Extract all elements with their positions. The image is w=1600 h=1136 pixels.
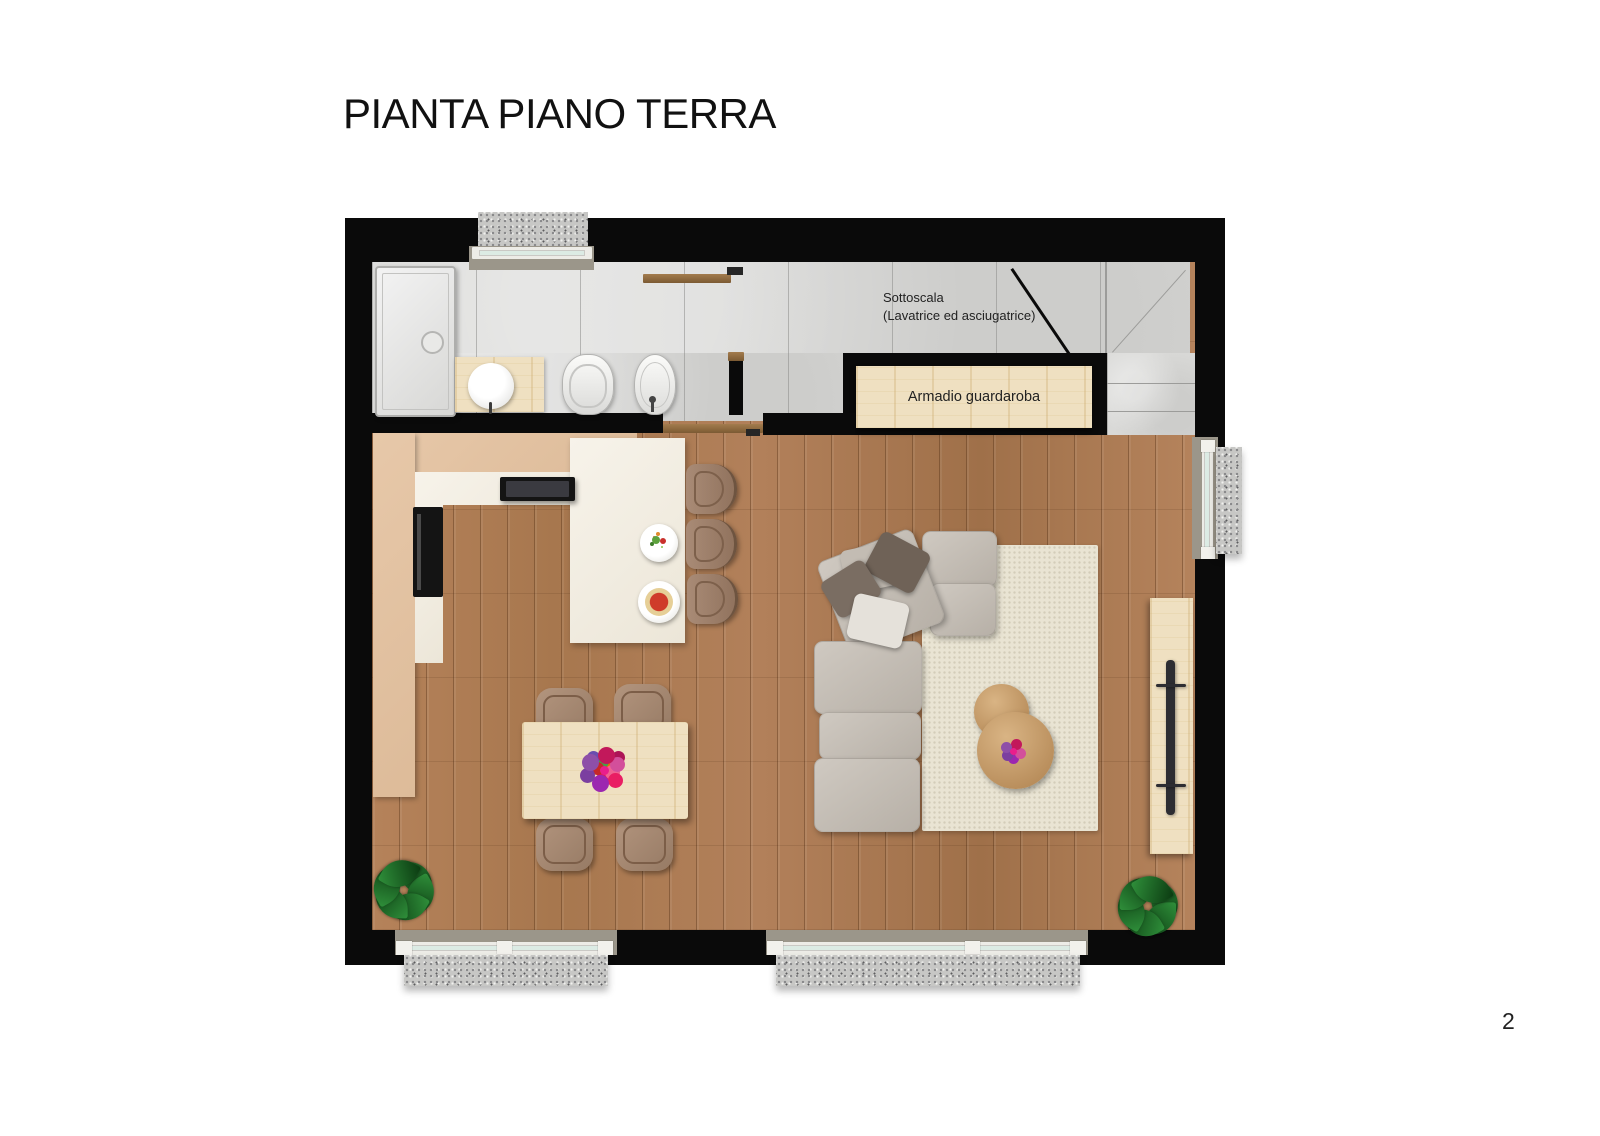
partition-cap <box>728 352 744 361</box>
document-page: PIANTA PIANO TERRA 2 Armadio guardaroba <box>0 0 1600 1136</box>
pasta-food <box>645 588 673 616</box>
kitchen-counter-left-column <box>373 433 415 797</box>
sofa-module <box>814 641 922 714</box>
sottoscala-note: Sottoscala (Lavatrice ed asciugatrice) <box>883 289 1035 325</box>
toilet <box>562 354 614 415</box>
bar-stool <box>686 464 737 514</box>
bar-stool <box>686 519 737 569</box>
dining-chair <box>536 818 593 871</box>
tv-stand-foot <box>1156 684 1186 687</box>
wall-hall-south <box>763 413 855 435</box>
bar-stool <box>687 574 738 624</box>
sottoscala-line2: (Lavatrice ed asciugatrice) <box>883 307 1035 325</box>
cooktop-surface <box>506 481 569 497</box>
stair-tread <box>1107 383 1195 384</box>
tile-floor-upper <box>372 262 1190 354</box>
page-number: 2 <box>1502 1008 1515 1035</box>
shower-drain <box>421 331 444 354</box>
page-title: PIANTA PIANO TERRA <box>343 90 776 138</box>
bidet-faucet-stem <box>651 402 654 412</box>
dining-chair <box>616 818 673 871</box>
wall-right <box>1195 218 1225 965</box>
stair-tread <box>1107 411 1195 412</box>
door-track-end <box>727 267 743 275</box>
sofa-module <box>922 531 997 587</box>
tv-stand-foot <box>1156 784 1186 787</box>
sottoscala-line1: Sottoscala <box>883 289 1035 307</box>
coffee-table-flowers <box>1010 748 1017 755</box>
sofa-module <box>819 712 921 760</box>
plate-salad <box>640 524 678 562</box>
wardrobe-label: Armadio guardaroba <box>856 366 1092 428</box>
bidet <box>634 354 676 415</box>
potted-plant <box>1124 858 1188 922</box>
flower-centerpiece <box>600 766 609 775</box>
oven-handle <box>417 514 421 590</box>
wall-left <box>345 218 372 965</box>
door-track-end <box>746 429 760 436</box>
salad-food <box>652 536 660 544</box>
wall-bath-partition <box>729 360 743 415</box>
sofa-module <box>814 758 920 832</box>
basin-faucet <box>489 402 492 414</box>
potted-plant <box>380 842 444 906</box>
